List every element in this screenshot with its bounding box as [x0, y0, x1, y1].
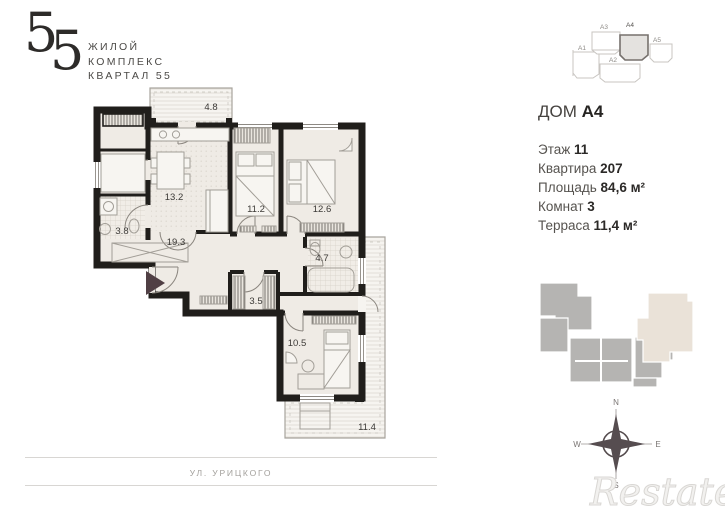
info-row-area: Площадь 84,6 м²: [538, 178, 645, 197]
info-row-apartment: Квартира 207: [538, 159, 645, 178]
mini-label-a1: A1: [578, 45, 586, 52]
wardrobe-icon: [234, 128, 270, 143]
wardrobe-icon: [300, 223, 344, 232]
washer-icon: [100, 198, 117, 215]
info-value: 3: [587, 199, 595, 214]
mini-block-a5: [650, 44, 672, 62]
dining-table-icon: [157, 152, 184, 189]
room-label-terrace: 11.4: [358, 422, 376, 433]
compass-n: N: [613, 398, 619, 407]
mini-label-a4: A4: [626, 22, 634, 29]
info-value: 11: [574, 142, 588, 157]
info-label: Комнат: [538, 199, 584, 214]
street-label: УЛ. УРИЦКОГО: [190, 468, 273, 478]
house-title: ДОМ A4: [538, 102, 645, 122]
info-row-floor: Этаж 11: [538, 140, 645, 159]
compass-w: W: [573, 440, 581, 449]
closet-icon: [101, 154, 145, 192]
mini-label-a5: A5: [653, 37, 661, 44]
info-label: Квартира: [538, 161, 596, 176]
room-label-wardrobe: 3.5: [249, 296, 262, 307]
info-value: 11,4 м²: [594, 218, 638, 233]
street-band: УЛ. УРИЦКОГО: [25, 457, 437, 486]
house-value: A4: [582, 102, 604, 121]
room-label-bedroom-2: 12.6: [313, 204, 332, 215]
mini-block-a2: [600, 64, 640, 82]
balcony: [150, 88, 232, 126]
room-label-bedroom-1: 11.2: [247, 204, 265, 215]
house-label: ДОМ: [538, 102, 577, 121]
info-row-rooms: Комнат 3: [538, 197, 645, 216]
cabinet-icon: [103, 114, 143, 126]
compass-e: E: [655, 440, 660, 449]
room-label-kitchen-living: 13.2: [165, 192, 184, 203]
mini-block-a4-highlighted: [620, 35, 648, 60]
restate-watermark: Restate: [590, 470, 725, 514]
info-value: 84,6 м²: [601, 180, 646, 195]
info-label: Терраса: [538, 218, 590, 233]
bed-icon: [324, 330, 350, 388]
site-massing: [540, 283, 693, 387]
room-label-hall: 19.3: [167, 237, 186, 248]
room-label-bathroom: 4.7: [315, 253, 328, 264]
room-label-balcony: 4.8: [204, 102, 217, 113]
info-label: Этаж: [538, 142, 570, 157]
info-label: Площадь: [538, 180, 597, 195]
apartment-info: ДОМ A4 Этаж 11 Квартира 207 Площадь 84,6…: [538, 102, 645, 235]
mini-label-a3: A3: [600, 24, 608, 31]
room-label-bedroom-3: 10.5: [288, 338, 307, 349]
compass-star-icon: [588, 414, 645, 473]
kitchen-counter-icon: [151, 128, 229, 141]
room-label-bathroom-small: 3.8: [115, 226, 128, 237]
info-row-terrace: Терраса 11,4 м²: [538, 216, 645, 235]
mini-label-a2: A2: [609, 57, 617, 64]
plan-graphics: 4.8 13.2 11.2 12.6 3.8 19.3 4.7 3.5 10.5…: [0, 0, 725, 518]
mini-site-plan: A1 A2 A3 A4 A5: [573, 22, 672, 82]
sofa-icon: [206, 190, 228, 232]
info-value: 207: [600, 161, 623, 176]
mini-block-a3: [592, 32, 620, 54]
mini-block-a1: [573, 52, 599, 78]
floorplan-page: 5 5 ЖИЛОЙ КОМПЛЕКС КВАРТАЛ 55: [0, 0, 725, 518]
